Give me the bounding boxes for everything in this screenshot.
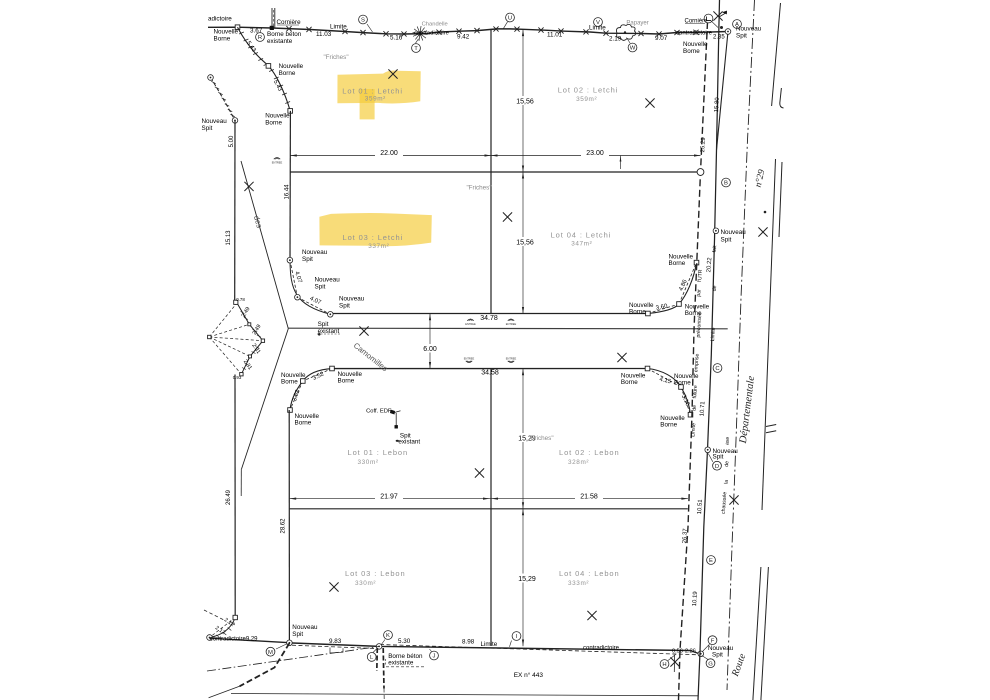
svg-text:"Friches": "Friches": [466, 185, 491, 192]
svg-text:6.00: 6.00: [423, 346, 437, 353]
svg-text:Coff. EDF: Coff. EDF: [366, 409, 392, 415]
svg-text:contradictoire: contradictoire: [414, 30, 449, 36]
svg-text:9.83: 9.83: [329, 638, 342, 645]
svg-text:Chandelle: Chandelle: [422, 22, 448, 28]
svg-text:10.51: 10.51: [697, 499, 704, 515]
svg-text:ENTREE: ENTREE: [464, 357, 475, 361]
svg-text:E: E: [709, 558, 713, 564]
svg-text:G: G: [708, 661, 713, 667]
svg-text:contradictoire: contradictoire: [676, 30, 713, 36]
svg-text:21.97: 21.97: [380, 494, 398, 501]
svg-text:Nouveau: Nouveau: [292, 624, 318, 631]
svg-text:ENTREE: ENTREE: [506, 322, 517, 326]
svg-text:2.26: 2.26: [685, 649, 696, 655]
svg-text:EX n° 443: EX n° 443: [514, 671, 544, 679]
svg-text:8.98: 8.98: [462, 639, 475, 646]
svg-text:Lot 03 : Letchi: Lot 03 : Letchi: [343, 233, 404, 242]
svg-text:5.00: 5.00: [229, 135, 235, 147]
svg-text:Borne: Borne: [660, 422, 677, 429]
svg-text:de: de: [692, 405, 698, 411]
svg-text:20.22: 20.22: [706, 257, 713, 273]
svg-text:contradictoire9.29: contradictoire9.29: [210, 637, 258, 643]
svg-text:11.01: 11.01: [547, 32, 563, 39]
svg-text:0.56: 0.56: [672, 649, 683, 655]
svg-text:de: de: [724, 461, 730, 467]
svg-text:"Friches": "Friches": [323, 54, 348, 61]
svg-text:15.80: 15.80: [714, 97, 721, 113]
svg-text:Limite: Limite: [589, 25, 606, 32]
svg-text:Borne: Borne: [629, 309, 646, 316]
svg-text:Nouvelle: Nouvelle: [279, 63, 304, 70]
svg-text:Borne: Borne: [265, 120, 282, 127]
svg-text:5.30: 5.30: [398, 638, 411, 645]
svg-text:34.58: 34.58: [481, 370, 499, 377]
svg-text:Borne: Borne: [683, 48, 700, 55]
svg-text:ENTREE: ENTREE: [506, 357, 517, 361]
svg-text:Lot 01 : Letchi: Lot 01 : Letchi: [342, 86, 403, 95]
svg-text:Spit: Spit: [292, 631, 303, 638]
svg-text:0.93: 0.93: [233, 375, 242, 380]
svg-text:26.37: 26.37: [682, 528, 689, 544]
svg-text:R: R: [258, 35, 262, 41]
svg-text:existant: existant: [398, 439, 420, 446]
svg-text:333m²: 333m²: [568, 580, 589, 587]
svg-text:D: D: [715, 464, 719, 470]
svg-text:Spit: Spit: [713, 454, 724, 461]
svg-text:adictoire: adictoire: [208, 16, 232, 23]
svg-text:2.19: 2.19: [609, 35, 622, 42]
svg-text:Spit: Spit: [302, 256, 313, 263]
svg-text:U: U: [508, 16, 512, 22]
svg-text:15,56: 15,56: [516, 239, 534, 246]
svg-text:26.49: 26.49: [226, 489, 232, 505]
svg-text:330m²: 330m²: [358, 459, 379, 466]
svg-text:Nouveau: Nouveau: [736, 26, 762, 33]
svg-text:Borne: Borne: [295, 420, 312, 427]
svg-text:Borne: Borne: [674, 380, 691, 387]
svg-text:Lot 04 : Letchi: Lot 04 : Letchi: [551, 231, 612, 240]
svg-text:Nouveau: Nouveau: [721, 229, 747, 236]
svg-text:10.19: 10.19: [692, 591, 699, 607]
svg-text:15.13: 15.13: [226, 230, 232, 246]
svg-text:Nouvelle: Nouvelle: [683, 41, 708, 48]
svg-text:B: B: [724, 181, 728, 187]
svg-text:Nouveau: Nouveau: [202, 118, 228, 125]
svg-text:5.16: 5.16: [390, 35, 403, 42]
svg-text:9.42: 9.42: [457, 33, 470, 40]
svg-text:H: H: [662, 662, 666, 668]
svg-text:328m²: 328m²: [568, 459, 589, 466]
svg-text:Limite: Limite: [481, 641, 498, 648]
svg-text:28.62: 28.62: [281, 518, 287, 534]
svg-text:337m²: 337m²: [368, 243, 389, 250]
svg-text:359m²: 359m²: [576, 96, 597, 103]
svg-text:J: J: [433, 654, 436, 660]
svg-text:Spit: Spit: [721, 237, 732, 244]
svg-text:Borne: Borne: [214, 36, 231, 43]
svg-text:9.07: 9.07: [655, 35, 668, 42]
svg-text:la: la: [724, 480, 730, 485]
svg-text:34.78: 34.78: [480, 315, 498, 322]
svg-text:Spit: Spit: [736, 33, 747, 40]
svg-text:2.35: 2.35: [713, 35, 725, 41]
svg-text:T: T: [414, 46, 418, 52]
svg-text:22.00: 22.00: [380, 150, 398, 157]
svg-text:Nouveau: Nouveau: [315, 277, 341, 284]
svg-text:existante: existante: [267, 38, 293, 45]
svg-text:de: de: [712, 285, 718, 291]
svg-text:K: K: [386, 633, 390, 639]
svg-text:Lot 02 : Lebon: Lot 02 : Lebon: [559, 448, 620, 457]
svg-text:Spit: Spit: [339, 303, 350, 310]
svg-text:Lot 03 : Lebon: Lot 03 : Lebon: [345, 569, 406, 578]
svg-text:l'UTR: l'UTR: [697, 269, 704, 282]
svg-text:21.58: 21.58: [580, 494, 598, 501]
svg-text:Nouvelle: Nouvelle: [265, 113, 290, 120]
svg-text:fait: fait: [712, 245, 719, 253]
svg-text:347m²: 347m²: [571, 240, 592, 247]
svg-text:Spit: Spit: [712, 652, 723, 659]
svg-text:Borne: Borne: [279, 70, 296, 77]
svg-text:C: C: [715, 366, 720, 372]
svg-text:Limite: Limite: [690, 423, 697, 437]
svg-text:S: S: [361, 18, 365, 24]
svg-text:axe: axe: [725, 436, 732, 445]
svg-text:ENTREE: ENTREE: [272, 160, 283, 164]
svg-text:W: W: [630, 46, 636, 52]
svg-text:par: par: [696, 289, 703, 297]
svg-text:330m²: 330m²: [355, 580, 376, 587]
svg-text:Borne: Borne: [621, 379, 638, 386]
svg-text:M: M: [268, 650, 273, 656]
svg-text:Nouvelle: Nouvelle: [214, 29, 239, 36]
svg-text:Papayer: Papayer: [626, 20, 648, 26]
svg-text:Nouveau: Nouveau: [339, 296, 365, 303]
svg-text:0.78: 0.78: [236, 297, 245, 302]
svg-text:15,56: 15,56: [516, 98, 534, 105]
svg-text:"Friches": "Friches": [528, 435, 553, 442]
svg-text:25.29: 25.29: [700, 137, 707, 153]
svg-text:Borne: Borne: [669, 260, 686, 267]
svg-text:15,29: 15,29: [518, 576, 536, 583]
svg-text:Limite: Limite: [330, 24, 347, 31]
svg-text:future: future: [692, 385, 699, 399]
svg-text:contradictoire: contradictoire: [583, 645, 620, 651]
svg-text:16.44: 16.44: [285, 184, 291, 200]
svg-text:11.03: 11.03: [316, 31, 332, 38]
svg-text:3.67: 3.67: [250, 28, 263, 35]
svg-text:Spit: Spit: [315, 284, 326, 291]
svg-text:ENTREE: ENTREE: [465, 322, 476, 326]
svg-text:existante: existante: [388, 660, 414, 667]
svg-text:Spit: Spit: [202, 125, 213, 132]
svg-text:Limite: Limite: [710, 327, 717, 341]
svg-text:Lot 04 : Lebon: Lot 04 : Lebon: [559, 569, 620, 578]
svg-text:Nouveau: Nouveau: [302, 249, 328, 256]
svg-text:10.71: 10.71: [699, 401, 706, 417]
svg-text:Lot 02 : Letchi: Lot 02 : Letchi: [558, 86, 619, 95]
svg-text:Lot 01 : Lebon: Lot 01 : Lebon: [348, 448, 409, 457]
svg-text:359m²: 359m²: [365, 96, 386, 103]
svg-text:23.00: 23.00: [586, 150, 604, 157]
svg-text:Borne: Borne: [281, 379, 298, 386]
svg-text:Borne: Borne: [338, 378, 355, 385]
svg-text:F: F: [711, 638, 715, 644]
